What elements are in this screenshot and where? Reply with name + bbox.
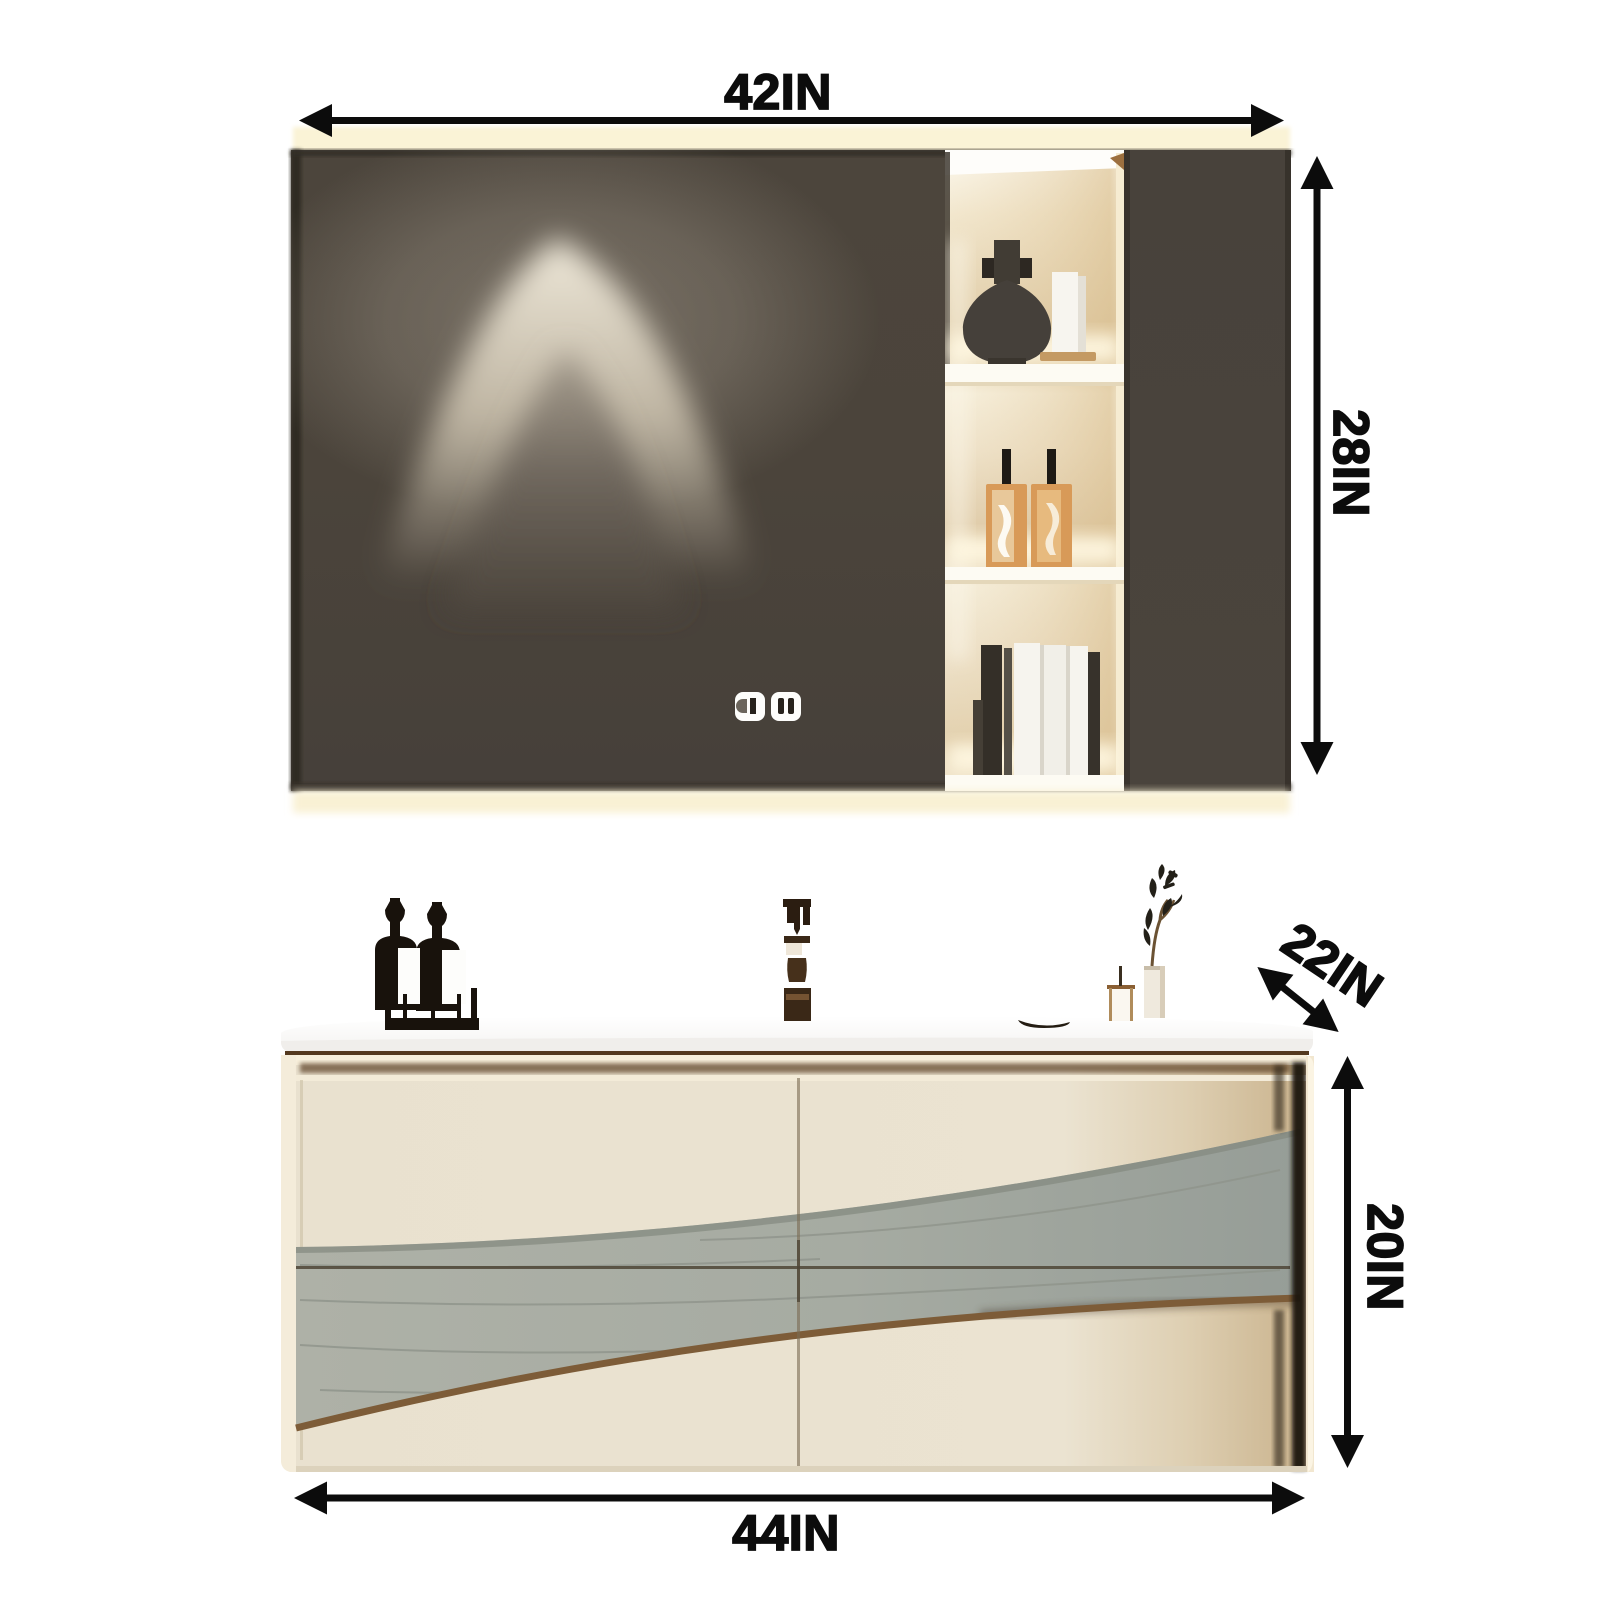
svg-text:28IN: 28IN	[1323, 409, 1379, 517]
svg-text:20IN: 20IN	[1357, 1203, 1413, 1311]
svg-text:42IN: 42IN	[724, 64, 832, 120]
svg-text:44IN: 44IN	[732, 1505, 840, 1561]
